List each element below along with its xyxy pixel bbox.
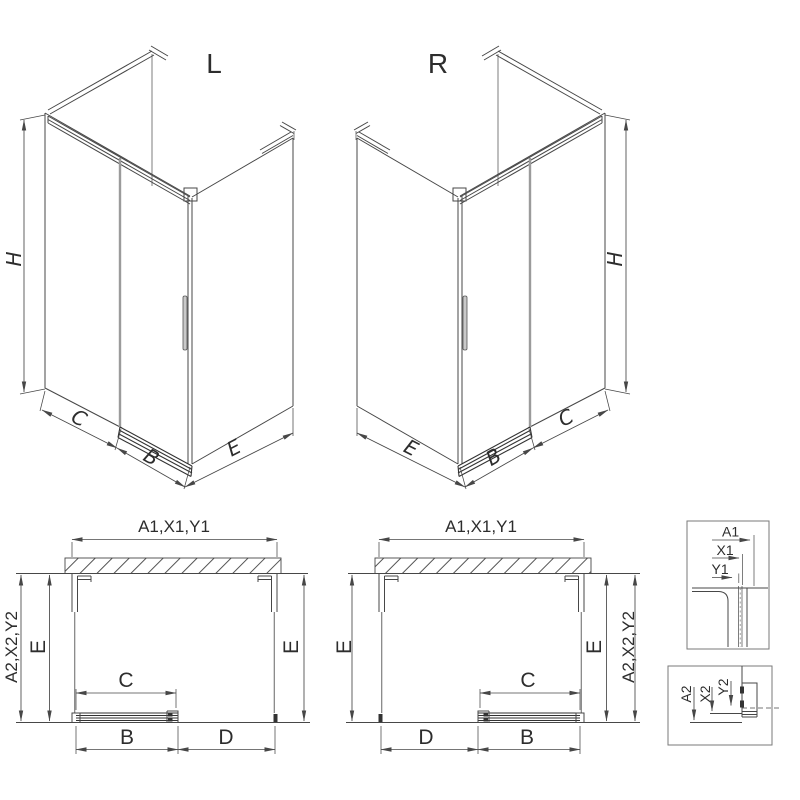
plan-right-depth-right-label: E xyxy=(583,640,606,654)
plan-right-fixed-panel-label: D xyxy=(418,726,433,749)
plan-right-overall-width-label: A1,X1,Y1 xyxy=(445,517,517,536)
plan-left-overall-depth-label: A2,X2,Y2 xyxy=(2,611,21,683)
plan-left-overall-width-label: A1,X1,Y1 xyxy=(138,517,210,536)
detail-dim-a1-label: A1 xyxy=(722,524,739,540)
detail-dim-x2-label: X2 xyxy=(697,685,713,702)
plan-left-depth-left-label: E xyxy=(27,640,50,654)
dim-label-height-left: H xyxy=(2,251,26,266)
detail-dim-x1-label: X1 xyxy=(717,542,734,558)
dim-label-side-left: E xyxy=(223,434,245,461)
plan-view-left: A1,X1,Y1 A2,X2,Y2 E E C B D xyxy=(2,517,310,754)
technical-drawing-svg: L H C B E R H E B C A1,X1,Y1 A2,X2,Y2 E … xyxy=(0,0,800,800)
detail-clamp-top xyxy=(740,687,744,694)
plan-left-fixed-panel-label: D xyxy=(218,726,233,749)
iso-view-right: R H E B C xyxy=(354,46,630,489)
variant-title-right: R xyxy=(428,48,448,79)
detail-dim-y2-label: Y2 xyxy=(715,678,731,695)
detail-frame-bottom xyxy=(668,666,772,745)
plan-left-door-opening-label: C xyxy=(118,669,133,692)
drawing-sheet: L H C B E R H E B C A1,X1,Y1 A2,X2,Y2 E … xyxy=(0,0,800,800)
detail-bottom-profile: A2 X2 Y2 xyxy=(668,666,779,745)
dim-label-height-right: H xyxy=(603,251,627,266)
variant-title-left: L xyxy=(206,48,222,79)
detail-clamp-bottom xyxy=(740,701,744,708)
detail-wall-section xyxy=(692,588,768,647)
wall-hatch-left-plan xyxy=(65,558,281,574)
plan-right-overall-depth-label: A2,X2,Y2 xyxy=(619,611,638,683)
plan-right-door-opening-label: C xyxy=(520,669,535,692)
iso-view-left: L H C B E xyxy=(2,46,296,489)
detail-wall-profile: A1 X1 Y1 xyxy=(687,521,769,649)
plan-view-right: A1,X1,Y1 E E A2,X2,Y2 C D B xyxy=(333,517,640,754)
plan-right-depth-left-label: E xyxy=(333,640,356,654)
dim-label-door-right: B xyxy=(482,443,506,471)
wall-hatch-right-plan xyxy=(375,558,591,574)
plan-right-door-panel-label: B xyxy=(520,726,534,749)
dim-label-side-right: E xyxy=(400,434,422,461)
detail-dim-a2-label: A2 xyxy=(678,685,694,702)
plan-left-depth-right-label: E xyxy=(280,640,303,654)
dim-label-panel-left: C xyxy=(68,404,91,432)
plan-left-door-panel-label: B xyxy=(120,726,134,749)
detail-dim-y1-label: Y1 xyxy=(712,561,729,577)
